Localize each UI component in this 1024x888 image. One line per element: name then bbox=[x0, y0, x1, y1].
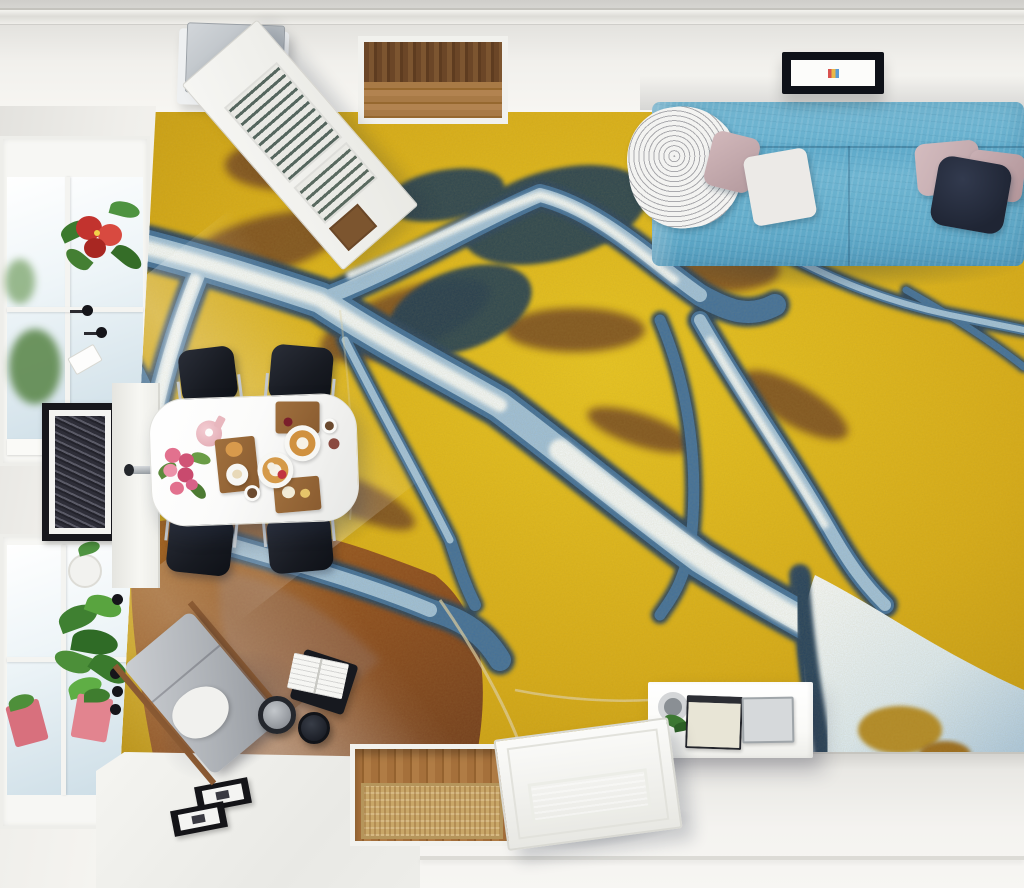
woven-mat bbox=[361, 783, 503, 839]
hallway-wood-wall bbox=[364, 42, 502, 82]
pillow-knit bbox=[742, 147, 817, 227]
wall-knob bbox=[112, 594, 123, 605]
frame-artwork bbox=[55, 416, 105, 528]
dining-table bbox=[148, 392, 360, 527]
bottom-wall-trim bbox=[420, 856, 1024, 860]
tv-logo bbox=[828, 69, 839, 78]
wall-knob bbox=[112, 686, 123, 697]
wall-hooks bbox=[70, 302, 130, 352]
hallway-wood-floor bbox=[364, 82, 502, 118]
red-flowers-pot bbox=[58, 194, 142, 278]
coffee-cup bbox=[322, 418, 338, 434]
rose-bouquet bbox=[156, 445, 212, 503]
doorway-bottom bbox=[350, 744, 516, 846]
pillow-navy bbox=[928, 154, 1013, 236]
room-top-down-photo bbox=[0, 0, 1024, 888]
stool-black bbox=[298, 712, 330, 744]
croissant-ring-plate bbox=[284, 425, 321, 462]
doorway-top bbox=[358, 36, 508, 124]
plant-reflection bbox=[9, 329, 61, 404]
white-pot-plant bbox=[68, 554, 102, 588]
sideboard bbox=[648, 682, 813, 758]
jam-jar bbox=[328, 438, 339, 449]
beige-tray bbox=[685, 695, 743, 750]
plant-reflection bbox=[5, 259, 35, 304]
crown-molding bbox=[0, 8, 1024, 25]
ivy-plant bbox=[48, 596, 133, 701]
gray-tray bbox=[742, 697, 795, 744]
wall-tv-frame bbox=[782, 52, 884, 94]
pink-planter-right bbox=[70, 693, 113, 743]
wall-knob bbox=[110, 704, 121, 715]
ornate-picture-frame bbox=[42, 403, 118, 541]
coffee-cup bbox=[244, 485, 261, 502]
stool-gray-top bbox=[258, 696, 296, 734]
glass-door-open bbox=[493, 717, 682, 851]
